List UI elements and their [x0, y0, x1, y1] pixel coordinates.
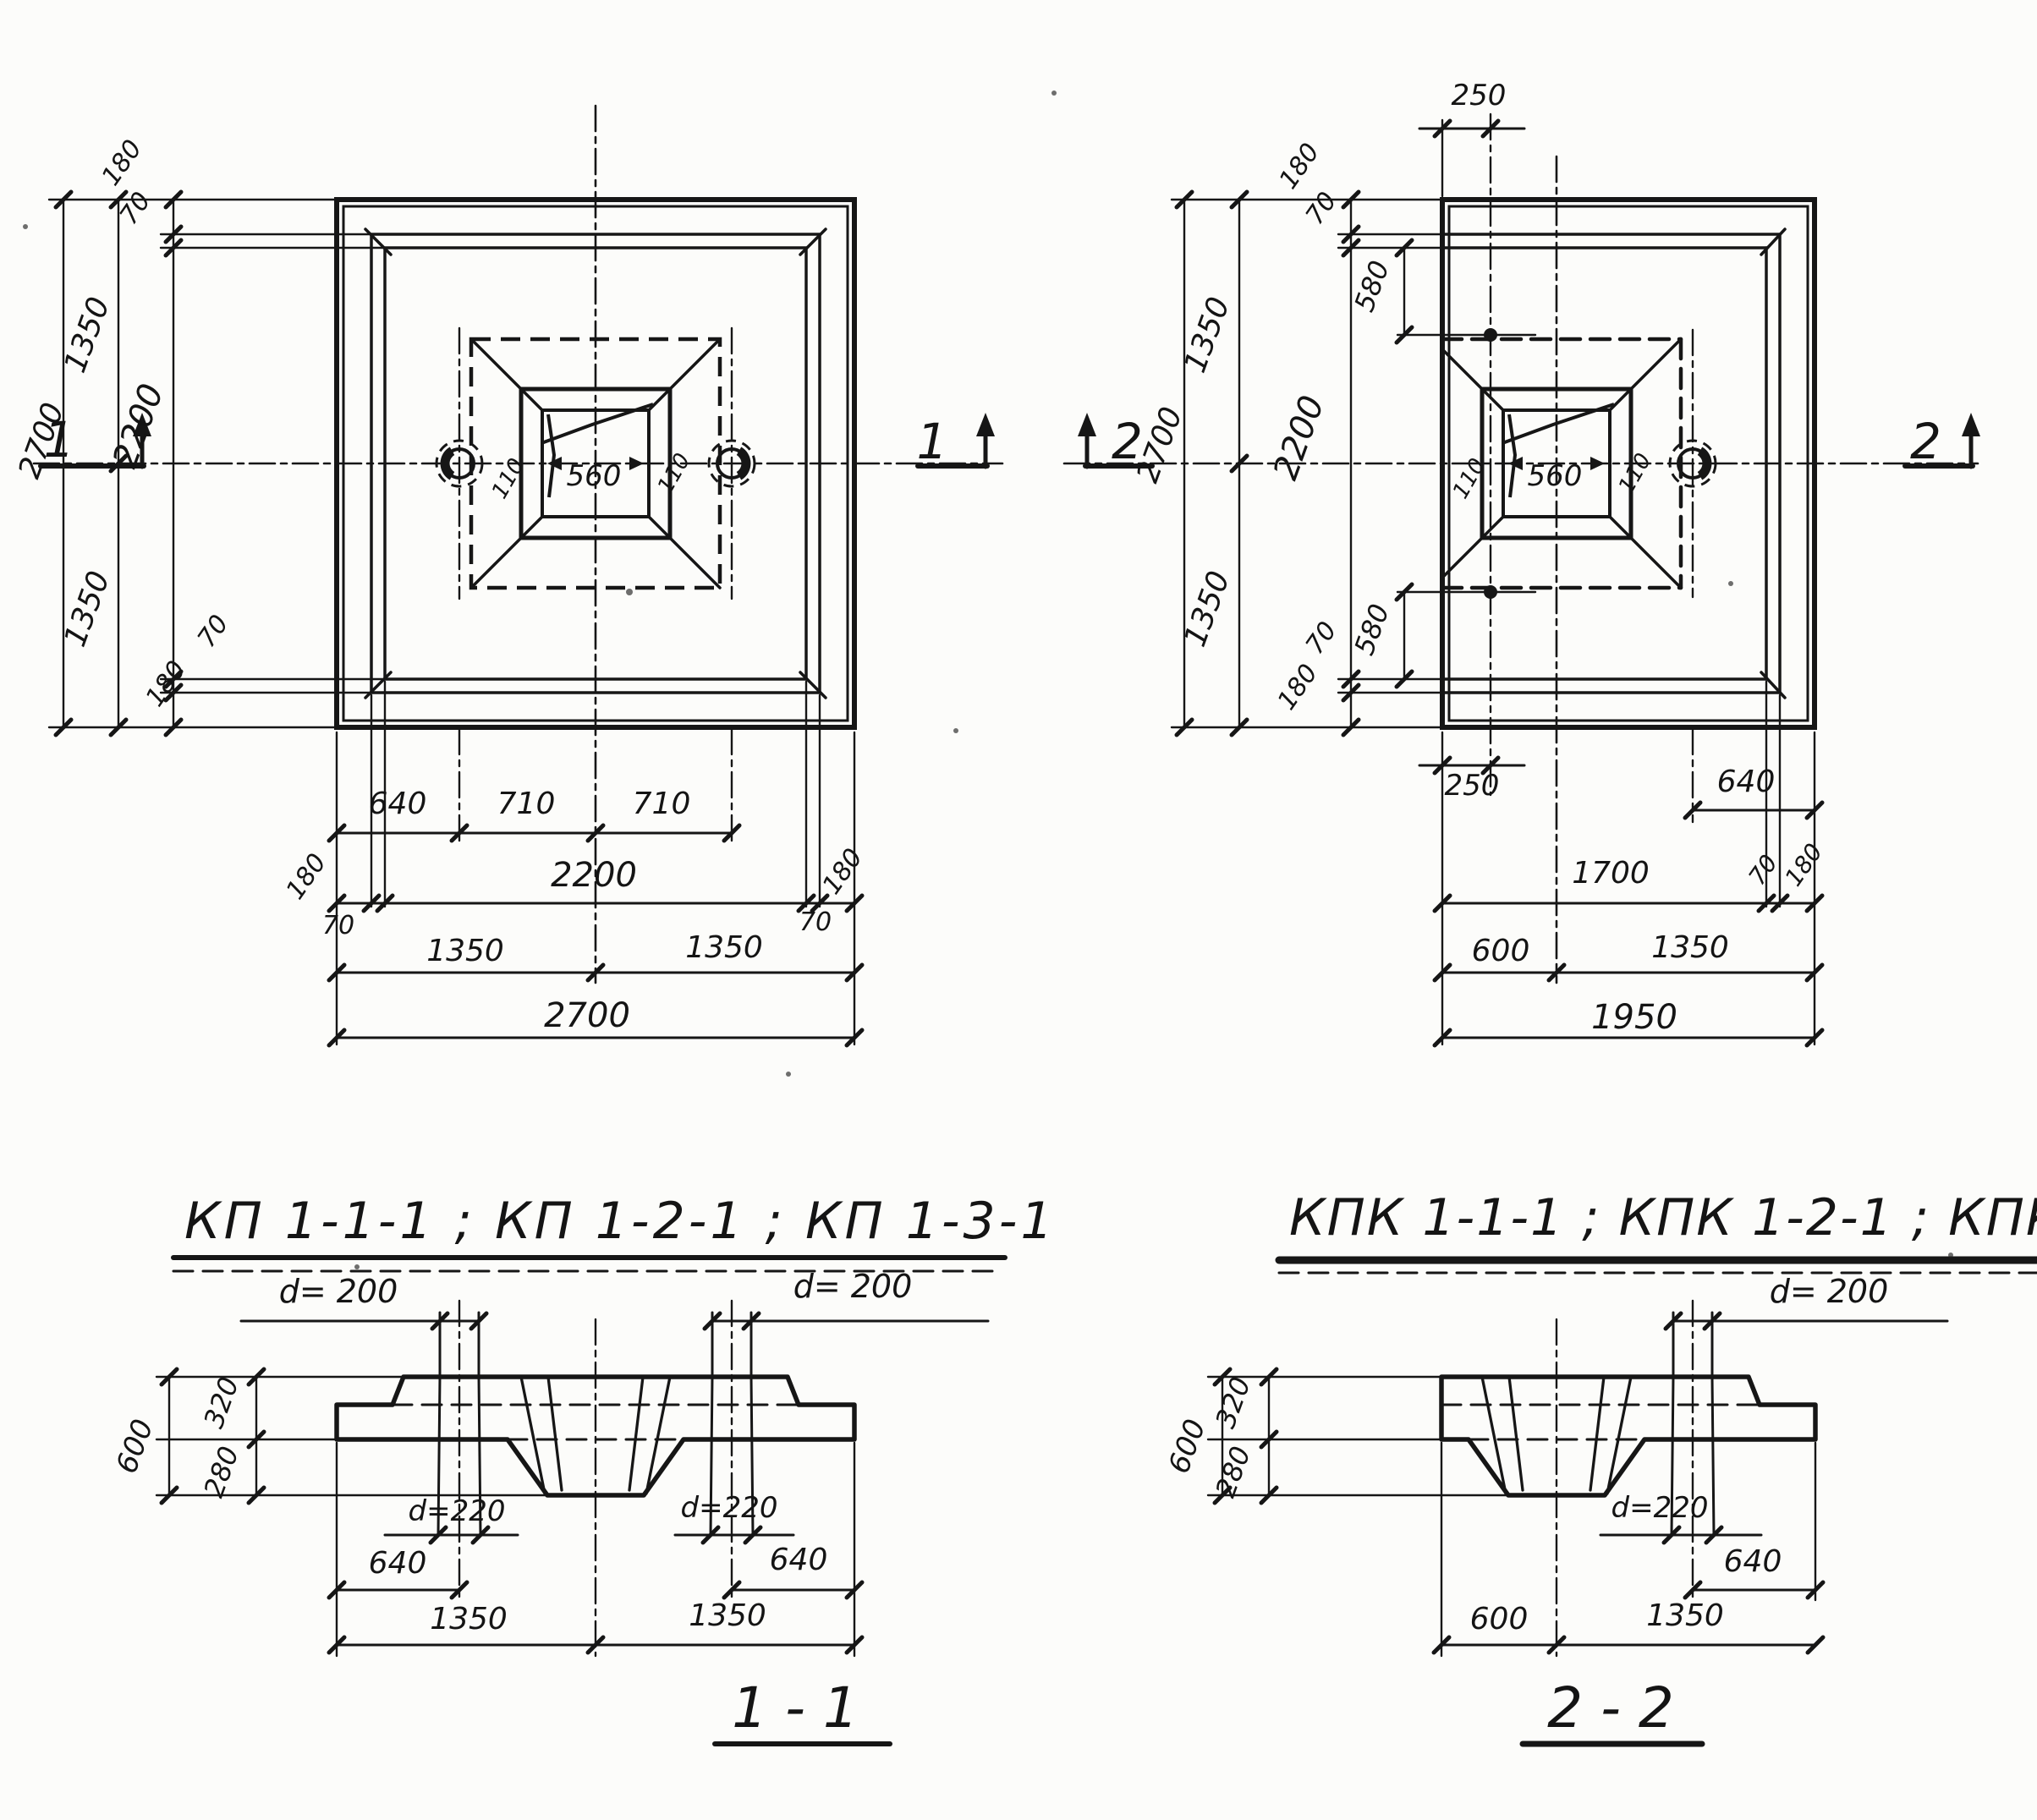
s2-dim-1350-bottom: 1350: [1646, 1598, 1724, 1633]
paper-speck: [786, 1072, 791, 1077]
rp-dim-1700-bottom: 1700: [1572, 856, 1650, 891]
lp-pocket-560: 560: [567, 459, 622, 493]
lp-dim-1350-upper-left: 1350: [58, 293, 117, 377]
rp-dim-2200-left: 2200: [1266, 391, 1332, 485]
pyramid-corner: [471, 339, 521, 389]
s1-d220-left: d=220: [409, 1494, 506, 1528]
s1-title: 1 - 1: [732, 1675, 859, 1741]
s2-title: 2 - 2: [1547, 1675, 1674, 1741]
s1-d200-left: d= 200: [279, 1273, 398, 1310]
rp-section-marker-2-east: 2: [1910, 413, 1941, 470]
section-arrow-icon: [1078, 413, 1096, 436]
rp-dim-180-top-left: 180: [1273, 138, 1326, 195]
pocket-bevel: [649, 389, 670, 410]
hole-wall: [1712, 1377, 1714, 1535]
rp-pocket-560: 560: [1528, 459, 1583, 493]
s2-dim-600-bottom: 600: [1470, 1602, 1529, 1636]
pocket-bevel: [521, 517, 542, 538]
pocket-bevel: [649, 517, 670, 538]
s1-dim-1350-right: 1350: [689, 1598, 766, 1633]
lp-dim-2200-left: 2200: [106, 379, 172, 473]
lp-dim-70-bottom-left-side: 70: [192, 610, 235, 653]
lp-dim-710-bottom-2: 710: [633, 787, 691, 821]
lp-pocket-110-right: 110: [653, 449, 696, 498]
rp-dim-600-bottom: 600: [1472, 934, 1530, 968]
pocket-wall: [548, 1377, 562, 1490]
rp-pocket-110-right: 110: [1614, 449, 1657, 498]
rp-dim-1350-lower-left: 1350: [1178, 567, 1237, 651]
paper-speck: [354, 1264, 360, 1269]
s2-d200: d= 200: [1770, 1273, 1889, 1310]
pyramid-corner: [670, 339, 720, 389]
pocket-wall: [629, 1377, 643, 1490]
rp-pocket-110-left: 110: [1448, 454, 1491, 503]
lp-section-marker-1-east: 1: [917, 413, 948, 470]
pocket-bevel: [1610, 389, 1631, 410]
rp-dim-1950-bottom: 1950: [1591, 998, 1677, 1037]
rp-dim-70-top-left: 70: [1300, 187, 1343, 230]
paper-speck: [1948, 1253, 1953, 1258]
lp-dim-180-bottom-l: 180: [280, 848, 332, 905]
rp-dim-580-top: 580: [1348, 256, 1396, 315]
s1-dim-280: 280: [197, 1442, 245, 1501]
title-right: КПК 1-1-1 ; КПК 1-2-1 ; КПК 1-3-1: [1289, 1188, 2037, 1247]
lp-dim-2200-bottom: 2200: [551, 856, 637, 895]
section-arrow-icon: [976, 413, 995, 436]
lp-dim-1350-lower-left: 1350: [58, 567, 117, 651]
s1-dim-1350-left: 1350: [430, 1602, 508, 1636]
rp-dim-180-bottom-right: 180: [1779, 838, 1828, 891]
lp-dim-70-bottom-r: 70: [799, 907, 832, 937]
s1-dim-320: 320: [197, 1373, 245, 1432]
pocket-wall: [1590, 1377, 1604, 1490]
paper-speck: [953, 728, 958, 733]
lp-dim-1350-bottom-2: 1350: [685, 930, 763, 965]
rp-dim-1350-bottom: 1350: [1651, 930, 1729, 965]
paper-speck: [1051, 90, 1057, 96]
rp-dim-1350-upper-left: 1350: [1178, 293, 1237, 377]
s2-dim-640: 640: [1724, 1544, 1782, 1579]
lp-dim-180-bottom-left-side: 180: [140, 655, 192, 712]
paper-speck: [23, 224, 28, 229]
rp-dim-70-bottom-left: 70: [1300, 617, 1343, 660]
pocket-bevel: [1610, 517, 1631, 538]
section-arrow-icon: [1962, 413, 1980, 436]
lp-dim-2700-bottom: 2700: [544, 996, 630, 1035]
lp-dim-70-bottom-l: 70: [322, 911, 354, 940]
s1-d200-right: d= 200: [793, 1268, 913, 1305]
blueprint-page: 2700135013501807022007018064071071018022…: [0, 0, 2037, 1820]
blueprint-canvas: 2700135013501807022007018064071071018022…: [0, 0, 2037, 1820]
s1-dim-600: 600: [110, 1415, 161, 1478]
s1-dim-640-left: 640: [369, 1546, 427, 1581]
s1-dim-640-right: 640: [770, 1543, 828, 1577]
rp-dim-180-bottom-left: 180: [1271, 659, 1324, 715]
rp-dim-70-bottom-right: 70: [1743, 849, 1782, 890]
lp-dim-710-bottom-1: 710: [497, 787, 556, 821]
s2-dim-600: 600: [1162, 1415, 1213, 1478]
pocket-bevel: [1482, 517, 1503, 538]
paper-speck: [626, 589, 633, 595]
pocket-scratch-mark: [548, 414, 554, 497]
s2-d220: d=220: [1611, 1491, 1709, 1525]
lp-dim-640-bottom: 640: [369, 787, 427, 821]
lp-dim-180-bottom-r: 180: [816, 843, 869, 900]
pyramid-corner: [471, 538, 521, 588]
pocket-bevel: [1482, 389, 1503, 410]
pyramid-corner: [1631, 339, 1681, 389]
rp-dim-580-bottom: 580: [1348, 600, 1396, 659]
lp-dim-70-top-left: 70: [114, 187, 157, 230]
rp-dim-250-bottom: 250: [1445, 769, 1500, 803]
s1-d220-right: d=220: [681, 1491, 778, 1525]
lp-dim-180-top-left: 180: [96, 134, 148, 191]
lp-section-marker-1-west: 1: [44, 411, 75, 469]
pocket-bevel: [521, 389, 542, 410]
rp-dim-640-bottom: 640: [1717, 765, 1776, 799]
lp-pocket-110-left: 110: [487, 454, 530, 503]
rp-section-marker-2-west: 2: [1112, 413, 1143, 470]
title-left: КП 1-1-1 ; КП 1-2-1 ; КП 1-3-1: [184, 1192, 1057, 1251]
rp-dim-250-top: 250: [1452, 79, 1507, 112]
lp-dim-1350-bottom-1: 1350: [426, 934, 504, 968]
pyramid-corner: [1631, 538, 1681, 588]
s2-dim-280: 280: [1209, 1442, 1257, 1501]
pocket-scratch-mark: [1509, 414, 1515, 497]
pyramid-corner: [670, 538, 720, 588]
drawing-labels: 2700135013501807022007018064071071018022…: [12, 79, 2037, 1741]
pocket-wall: [1509, 1377, 1523, 1490]
paper-speck: [1728, 581, 1733, 586]
